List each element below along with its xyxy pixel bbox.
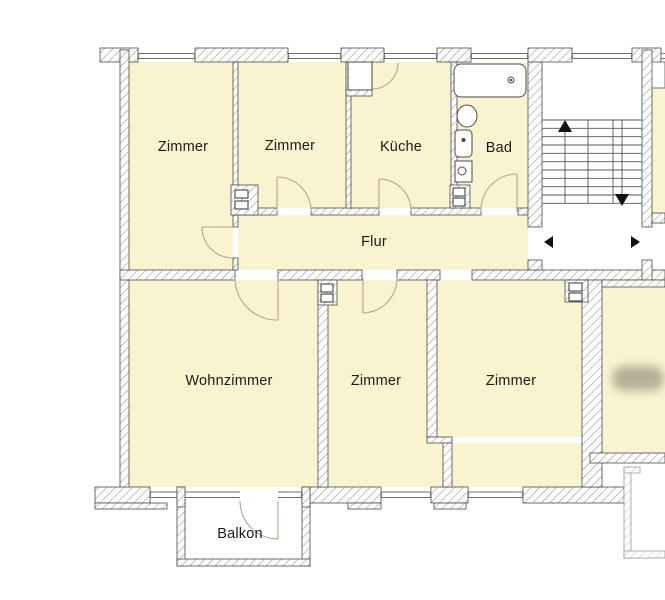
room-zimmer-top-left — [129, 62, 233, 270]
neighbor-niche — [652, 62, 665, 88]
label-zimmer-bottom-mid: Zimmer — [351, 373, 401, 389]
window-top-stairwell — [572, 54, 632, 59]
label-wohnzimmer: Wohnzimmer — [185, 373, 272, 389]
window-bottom-zimmer-right — [468, 492, 523, 498]
label-balkon: Balkon — [217, 526, 263, 542]
window-top-zimmer1 — [138, 54, 195, 59]
label-bad: Bad — [486, 140, 512, 156]
neighbor-balcony — [624, 467, 665, 558]
window-bottom-wohnzimmer-right — [278, 492, 302, 498]
bathtub-icon — [454, 64, 526, 97]
window-bottom-zimmer-mid — [381, 492, 431, 498]
label-zimmer-top-left: Zimmer — [158, 139, 208, 155]
room-zimmer-bottom-right-ext — [452, 443, 582, 487]
toilet-icon — [457, 105, 477, 127]
window-top-bad — [471, 54, 528, 59]
label-kueche: Küche — [380, 139, 422, 155]
label-flur: Flur — [361, 234, 387, 250]
window-top-neighbor — [661, 54, 665, 59]
kueche-shaft — [348, 62, 372, 90]
window-top-kueche — [384, 54, 437, 59]
washer-icon — [455, 161, 472, 182]
room-zimmer-bottom-right — [437, 280, 582, 437]
floorplan-canvas: Zimmer Zimmer Küche Bad Flur Wohnzimmer … — [0, 0, 665, 600]
sink-icon — [455, 130, 472, 157]
window-top-zimmer2 — [288, 54, 341, 59]
room-zimmer-bottom-mid-ext — [427, 443, 443, 487]
room-neighbor-top — [652, 88, 665, 213]
stairwell-floor — [542, 62, 642, 270]
blurred-room-label — [612, 366, 664, 391]
balcony-wall-joints — [177, 487, 310, 507]
window-bottom-wohnzimmer-left — [150, 492, 240, 498]
label-zimmer-top-mid: Zimmer — [265, 138, 315, 154]
label-zimmer-bottom-right: Zimmer — [486, 373, 536, 389]
floorplan-drawing: Zimmer Zimmer Küche Bad Flur Wohnzimmer … — [0, 0, 665, 600]
